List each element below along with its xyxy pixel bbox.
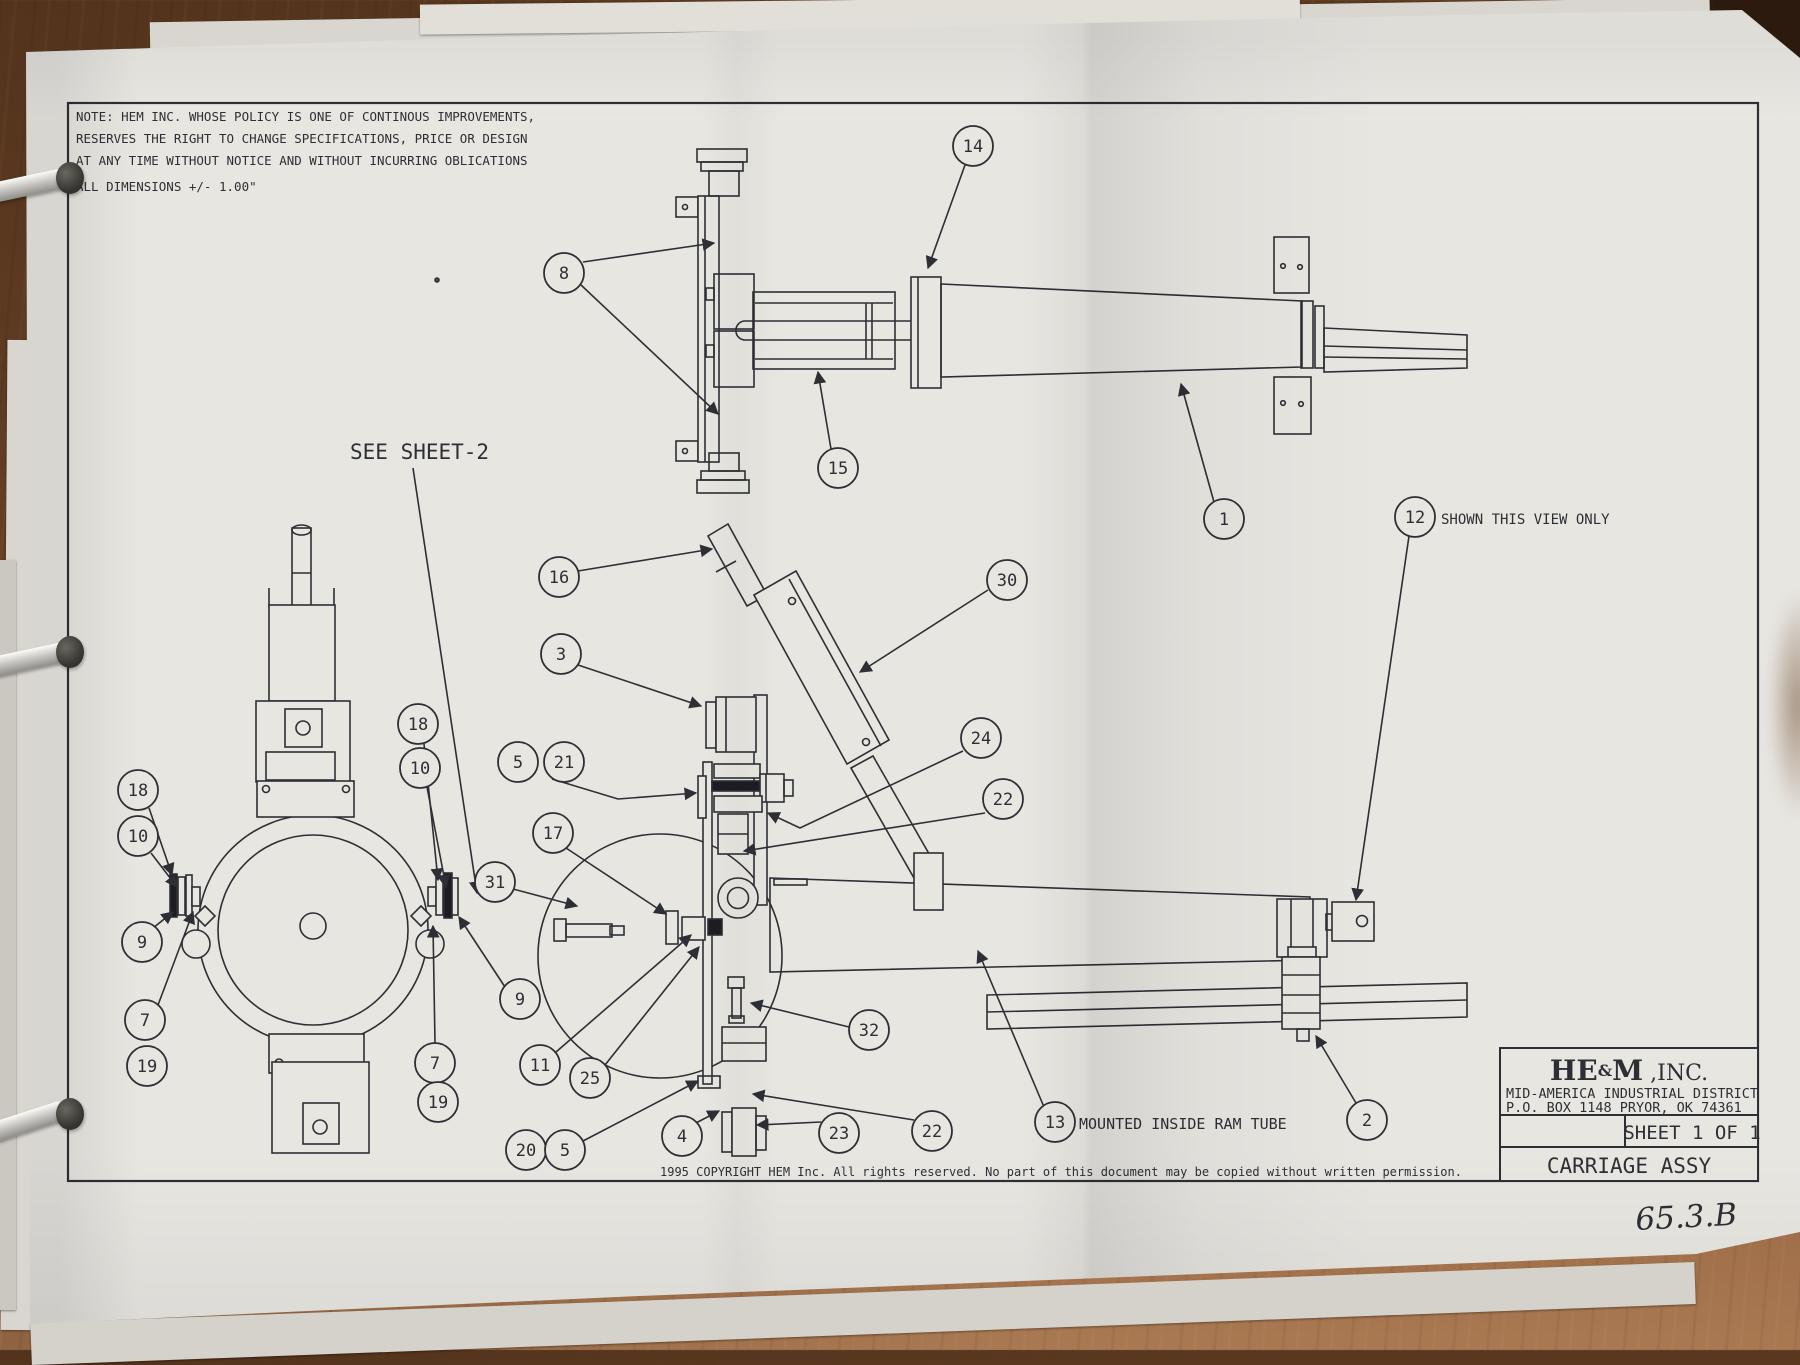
balloon-4: 4: [662, 1111, 719, 1156]
balloon-10m: 10: [400, 748, 446, 887]
middle-assembly-drawing: [538, 524, 1467, 1156]
balloon-30: 30: [860, 560, 1027, 672]
balloon-1: 1: [1181, 384, 1244, 539]
balloon-12: 12: [1356, 497, 1435, 900]
svg-text:19: 19: [428, 1093, 448, 1113]
svg-text:7: 7: [430, 1054, 440, 1074]
svg-text:20: 20: [516, 1141, 536, 1161]
balloon-10L: 10: [118, 816, 177, 887]
balloon-11: 11: [520, 935, 691, 1085]
balloon-5a: 5: [498, 742, 538, 782]
svg-text:9: 9: [515, 990, 525, 1010]
svg-text:4: 4: [677, 1127, 687, 1147]
balloon-3: 3: [541, 634, 701, 706]
svg-text:13: 13: [1045, 1113, 1065, 1133]
binder-ring-cap: [56, 162, 84, 194]
sheet-number: SHEET 1 OF 1: [1623, 1122, 1760, 1144]
svg-text:16: 16: [549, 568, 569, 588]
svg-text:11: 11: [530, 1056, 550, 1076]
see-sheet-2-leader: [413, 468, 477, 893]
note-line-4: ALL DIMENSIONS +/- 1.00": [76, 179, 257, 194]
note-line-2: RESERVES THE RIGHT TO CHANGE SPECIFICATI…: [76, 131, 528, 146]
balloon-23: 23: [757, 1113, 859, 1153]
note-line-1: NOTE: HEM INC. WHOSE POLICY IS ONE OF CO…: [76, 109, 535, 124]
svg-text:30: 30: [997, 571, 1017, 591]
svg-text:15: 15: [828, 459, 848, 479]
balloon-8: 8: [544, 243, 718, 414]
see-sheet-2-label: SEE SHEET-2: [350, 440, 489, 464]
svg-text:24: 24: [971, 729, 991, 749]
balloon-13: 13: [978, 951, 1075, 1142]
top-assembly-drawing: [676, 149, 1467, 493]
copyright-line: 1995 COPYRIGHT HEM Inc. All rights reser…: [660, 1165, 1462, 1179]
svg-text:18: 18: [408, 715, 428, 735]
shown-view-label: SHOWN THIS VIEW ONLY: [1441, 512, 1610, 528]
svg-text:8: 8: [559, 264, 569, 284]
balloon-9L: 9: [122, 912, 173, 962]
svg-text:32: 32: [859, 1021, 879, 1041]
balloon-9R: 9: [459, 917, 540, 1019]
svg-text:1: 1: [1219, 510, 1229, 530]
svg-text:21: 21: [554, 753, 574, 773]
balloon-20: 20: [506, 1130, 546, 1170]
binder-ring-cap: [56, 1098, 84, 1130]
note-line-3: AT ANY TIME WITHOUT NOTICE AND WITHOUT I…: [76, 153, 528, 168]
svg-text:14: 14: [963, 137, 983, 157]
balloon-2: 2: [1316, 1036, 1387, 1140]
binder-ring-cap: [56, 636, 84, 668]
svg-text:25: 25: [580, 1069, 600, 1089]
mounted-label: MOUNTED INSIDE RAM TUBE: [1079, 1115, 1287, 1133]
svg-text:12: 12: [1405, 508, 1425, 528]
svg-text:5: 5: [560, 1141, 570, 1161]
svg-text:22: 22: [993, 790, 1013, 810]
assembly-drawing: NOTE: HEM INC. WHOSE POLICY IS ONE OF CO…: [0, 0, 1800, 1350]
svg-text:10: 10: [410, 759, 430, 779]
svg-text:19: 19: [137, 1057, 157, 1077]
drawing-title: CARRIAGE ASSY: [1547, 1154, 1712, 1178]
company-address-2: P.O. BOX 1148 PRYOR, OK 74361: [1506, 1100, 1742, 1116]
svg-text:5: 5: [513, 753, 523, 773]
svg-text:2: 2: [1362, 1111, 1372, 1131]
svg-text:10: 10: [128, 827, 148, 847]
svg-text:18: 18: [128, 781, 148, 801]
svg-text:22: 22: [922, 1122, 942, 1142]
balloon-18m: 18: [398, 704, 438, 880]
balloon-16: 16: [539, 549, 712, 597]
balloon-14: 14: [928, 126, 993, 268]
svg-text:23: 23: [829, 1124, 849, 1144]
svg-text:7: 7: [140, 1011, 150, 1031]
balloon-32: 32: [751, 1003, 889, 1050]
svg-text:17: 17: [543, 824, 563, 844]
balloon-19R: 19: [418, 1082, 458, 1122]
balloon-15: 15: [818, 372, 858, 488]
handwritten-index: 65.3.B: [1635, 1197, 1738, 1238]
balloon-21: 21: [544, 742, 696, 799]
balloon-19L: 19: [127, 1046, 167, 1086]
svg-text:3: 3: [556, 645, 566, 665]
svg-text:9: 9: [137, 933, 147, 953]
drawing-sheet: NOTE: HEM INC. WHOSE POLICY IS ONE OF CO…: [0, 0, 1800, 1350]
svg-text:31: 31: [485, 873, 505, 893]
